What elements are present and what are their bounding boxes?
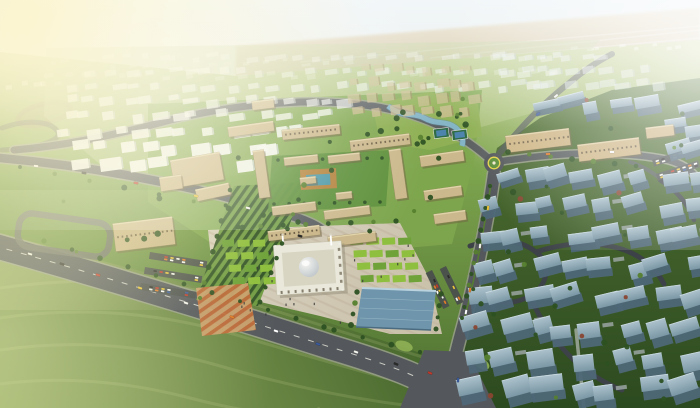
car: [457, 378, 459, 383]
tree: [554, 396, 558, 400]
tree: [491, 312, 496, 317]
tree: [506, 249, 511, 254]
tree: [469, 272, 473, 276]
blue-residential-building: [640, 374, 672, 401]
tree: [460, 316, 464, 320]
tree: [351, 312, 356, 317]
tree: [580, 334, 585, 339]
tree: [533, 333, 537, 337]
blue-residential-building: [529, 373, 567, 403]
tree: [348, 322, 354, 328]
tree: [471, 287, 475, 291]
tree: [661, 396, 666, 401]
blue-residential-building: [572, 353, 596, 381]
tree: [464, 293, 469, 298]
tree: [360, 335, 364, 339]
tree: [601, 339, 607, 345]
blue-residential-building: [586, 256, 613, 278]
tree: [638, 273, 643, 278]
tree: [321, 324, 326, 329]
tree: [478, 301, 483, 306]
field-glow: [0, 190, 300, 408]
tree: [624, 344, 629, 349]
right-haze: [430, 0, 700, 250]
tree: [418, 350, 422, 354]
aerial-rendering-canvas: [0, 0, 700, 408]
tree: [552, 303, 557, 308]
tree: [605, 361, 610, 366]
tree: [462, 305, 466, 309]
tree: [331, 327, 336, 332]
tree: [624, 295, 628, 299]
tree: [471, 261, 475, 265]
building-roof: [572, 354, 594, 373]
tree: [473, 249, 478, 254]
tree: [522, 262, 527, 267]
tree: [436, 315, 440, 319]
tree: [484, 354, 490, 360]
tree: [433, 326, 438, 331]
tree: [659, 379, 663, 383]
car-body: [457, 378, 459, 383]
masterplan-rendering: [0, 0, 700, 408]
tree: [467, 283, 472, 288]
tree: [473, 325, 477, 329]
blue-residential-building: [549, 324, 573, 347]
pedestrian: [340, 321, 341, 323]
tree: [388, 342, 394, 348]
tree: [488, 393, 493, 398]
tree: [568, 286, 573, 291]
